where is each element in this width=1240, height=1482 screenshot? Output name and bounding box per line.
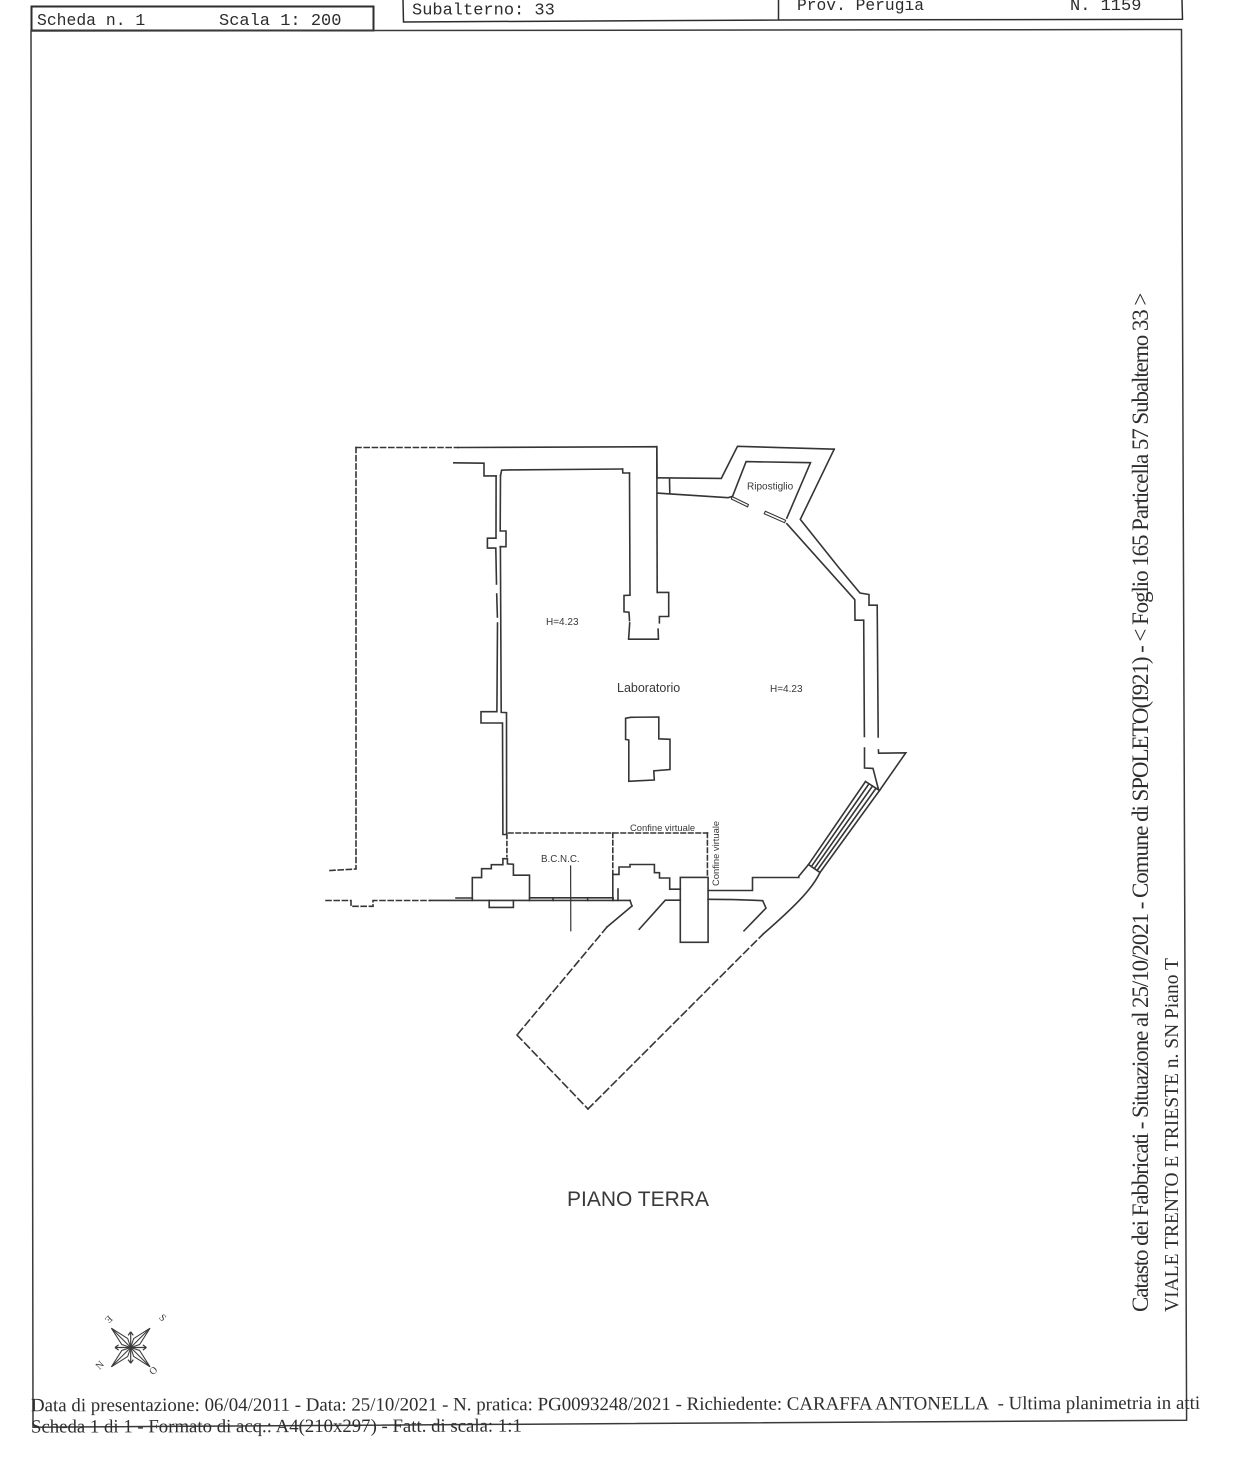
svg-text:Scala 1: 200: Scala 1: 200 — [219, 12, 341, 31]
svg-text:Catasto dei Fabbricati - Situa: Catasto dei Fabbricati - Situazione al 2… — [1128, 294, 1153, 1312]
svg-text:Confine virtuale: Confine virtuale — [710, 821, 721, 886]
svg-text:VIALE TRENTO E TRIESTE n. SN P: VIALE TRENTO E TRIESTE n. SN Piano T — [1162, 958, 1183, 1312]
svg-text:Ripostiglio: Ripostiglio — [747, 482, 794, 493]
svg-text:Scheda 1 di 1 - Formato di acq: Scheda 1 di 1 - Formato di acq.: A4(210x… — [31, 1416, 522, 1438]
svg-text:Data di presentazione: 06/04/2: Data di presentazione: 06/04/2011 - Data… — [31, 1393, 1200, 1416]
svg-text:H=4.23: H=4.23 — [770, 684, 803, 695]
svg-text:Scheda n. 1: Scheda n. 1 — [37, 11, 145, 30]
svg-text:N. 1159: N. 1159 — [1070, 0, 1141, 16]
svg-text:B.C.N.C.: B.C.N.C. — [541, 854, 580, 865]
svg-text:H=4.23: H=4.23 — [546, 617, 579, 628]
svg-text:Laboratorio: Laboratorio — [617, 681, 680, 695]
svg-text:Prov. Perugia: Prov. Perugia — [797, 0, 924, 15]
svg-text:PIANO TERRA: PIANO TERRA — [567, 1188, 709, 1211]
svg-text:Subalterno: 33: Subalterno: 33 — [412, 2, 555, 21]
svg-text:Confine virtuale: Confine virtuale — [630, 822, 695, 833]
